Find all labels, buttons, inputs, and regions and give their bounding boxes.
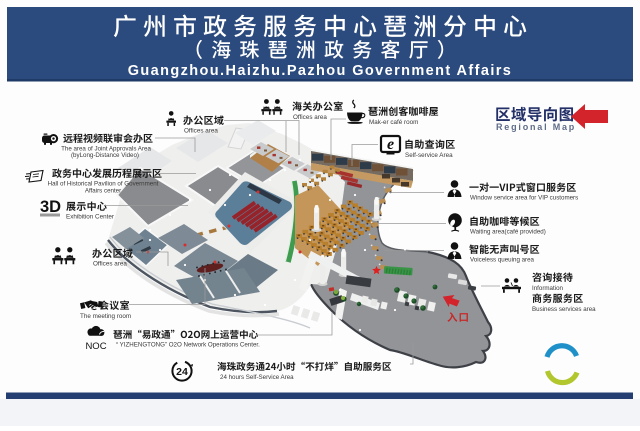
- svg-text:Affairs center: Affairs center: [85, 188, 121, 195]
- svg-text:Window service area for VIP cu: Window service area for VIP customers: [470, 195, 578, 202]
- svg-text:3D: 3D: [40, 198, 61, 216]
- svg-text:(byLong-Distance Video): (byLong-Distance Video): [71, 152, 139, 159]
- svg-text:Regional Map: Regional Map: [496, 122, 576, 132]
- svg-text:Hall of Historical Pavilion of: Hall of Historical Pavilion of Governmen…: [48, 181, 159, 188]
- svg-text:Offices area: Offices area: [184, 128, 218, 135]
- svg-text:e: e: [387, 136, 394, 153]
- svg-text:Exhibition Center: Exhibition Center: [66, 214, 114, 221]
- svg-text:NOC: NOC: [85, 341, 106, 352]
- svg-text:Voiceless queuing area: Voiceless queuing area: [470, 257, 535, 264]
- svg-text:“ YIZHENGTONG” O2O Network Op: “ YIZHENGTONG” O2O Network Operations Ce…: [116, 342, 260, 349]
- svg-text:24 hours Self-Service Area: 24 hours Self-Service Area: [220, 374, 294, 381]
- svg-text:Business services area: Business services area: [532, 306, 596, 313]
- svg-text:Offices area: Offices area: [93, 261, 127, 268]
- svg-text:Guangzhou.Haizhu.Pazhou Govern: Guangzhou.Haizhu.Pazhou Government Affai…: [128, 63, 513, 79]
- svg-text:The meeting room: The meeting room: [80, 313, 131, 320]
- svg-text:Waiting area(café provided): Waiting area(café provided): [470, 229, 546, 236]
- svg-text:Information: Information: [532, 285, 564, 292]
- svg-text:Offices area: Offices area: [293, 114, 327, 121]
- svg-text:24: 24: [176, 366, 188, 378]
- svg-text:Self-service Area: Self-service Area: [405, 152, 453, 159]
- svg-text:Mak-er café room: Mak-er café room: [369, 119, 418, 126]
